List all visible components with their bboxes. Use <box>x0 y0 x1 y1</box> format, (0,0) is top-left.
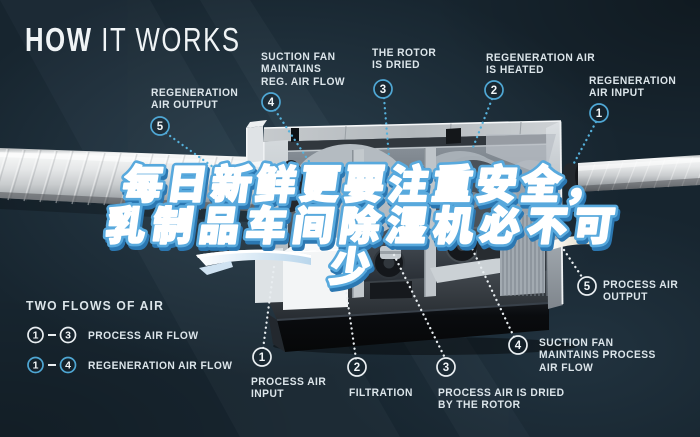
svg-text:3: 3 <box>65 330 71 342</box>
svg-text:1: 1 <box>33 360 39 372</box>
svg-text:2: 2 <box>354 362 360 374</box>
svg-text:5: 5 <box>584 281 591 293</box>
svg-text:4: 4 <box>515 340 522 352</box>
svg-text:2: 2 <box>491 85 497 97</box>
svg-text:1: 1 <box>33 330 39 342</box>
svg-text:1: 1 <box>596 108 603 120</box>
svg-text:3: 3 <box>380 84 386 96</box>
svg-text:1: 1 <box>259 352 266 364</box>
svg-text:4: 4 <box>65 360 71 372</box>
svg-text:5: 5 <box>157 121 164 133</box>
svg-text:4: 4 <box>268 97 275 109</box>
svg-text:3: 3 <box>443 362 449 374</box>
